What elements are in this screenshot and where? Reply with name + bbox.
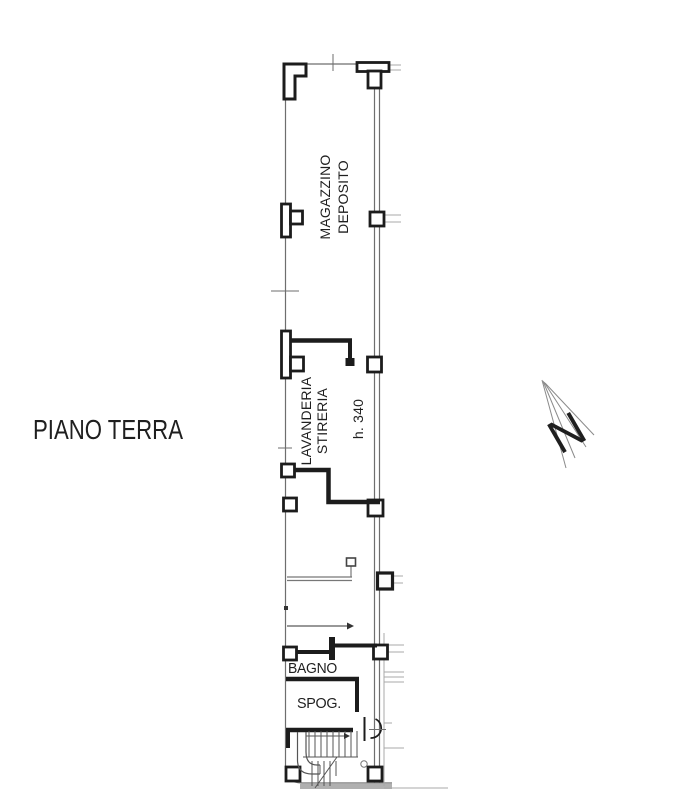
pillar-right-4	[378, 573, 393, 589]
room-label-lavanderia-line1: LAVANDERIA	[298, 376, 314, 465]
pillar-bottom-right	[368, 767, 382, 781]
north-arrow: N	[539, 380, 595, 468]
lavanderia-wall-foot	[346, 358, 355, 366]
stair-treads-upper	[309, 731, 357, 757]
floor-plan-page: PIANO TERRA	[0, 0, 673, 800]
pillar-top-left-corner	[284, 64, 306, 99]
stair-direction-arrowhead	[344, 733, 350, 739]
column-circle	[361, 761, 367, 767]
floor-plan-drawing: PIANO TERRA	[0, 0, 673, 800]
door-swing	[365, 717, 387, 741]
pillar-top-right-stem	[368, 71, 381, 88]
pillar-bottom-left	[286, 767, 300, 781]
exterior-extension-lines	[384, 65, 448, 788]
pillar-right-1	[370, 212, 384, 226]
partition-post	[347, 558, 356, 566]
annotation-arrowhead	[347, 623, 354, 630]
pillar-left-step-a	[282, 464, 295, 477]
stair-rail-inner	[306, 732, 320, 765]
north-letter: N	[539, 401, 595, 464]
left-wall-dot	[284, 606, 288, 610]
bagno-wall-bar	[329, 637, 335, 660]
stepped-wall	[294, 470, 380, 502]
room-label-bagno: BAGNO	[288, 660, 337, 677]
pillar-right-2	[368, 357, 382, 372]
room-label-lavanderia-line2: STIRERIA	[314, 387, 330, 454]
partition-lines	[287, 558, 356, 630]
room-labels: MAGAZZINO DEPOSITO LAVANDERIA STIRERIA h…	[288, 154, 366, 712]
pillar-left-lavanderia-tab	[291, 357, 304, 371]
page-title: PIANO TERRA	[33, 414, 183, 445]
pillar-left-bagno	[284, 647, 297, 660]
pillar-left-step-b	[284, 498, 297, 511]
pillar-left-mid-tab	[291, 211, 303, 224]
room-label-magazzino-line2: DEPOSITO	[335, 160, 351, 234]
room-label-spog: SPOG.	[297, 695, 341, 712]
room-height-note: h. 340	[350, 399, 366, 439]
staircase	[298, 731, 368, 788]
room-label-magazzino-line1: MAGAZZINO	[317, 154, 333, 239]
